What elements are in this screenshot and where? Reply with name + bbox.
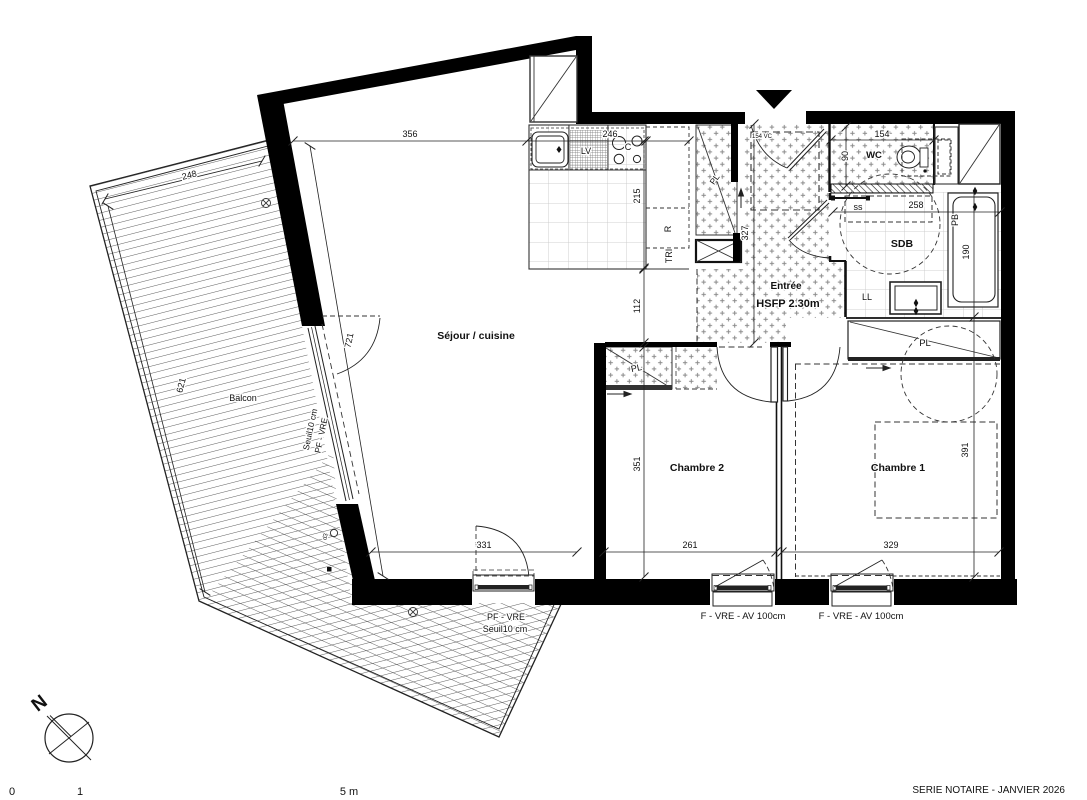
svg-text:154 VC: 154 VC	[752, 134, 773, 140]
svg-text:TRI: TRI	[664, 249, 674, 264]
svg-text:F - VRE - AV 100cm: F - VRE - AV 100cm	[819, 611, 904, 622]
svg-text:258: 258	[908, 200, 923, 210]
svg-text:261: 261	[682, 540, 697, 550]
svg-text:HSFP 2.30m: HSFP 2.30m	[756, 298, 820, 310]
svg-text:ss: ss	[854, 202, 864, 212]
svg-text:351: 351	[632, 456, 642, 471]
svg-text:356: 356	[402, 129, 417, 139]
svg-text:R: R	[663, 225, 673, 232]
svg-text:331: 331	[476, 540, 491, 550]
svg-text:329: 329	[883, 540, 898, 550]
svg-text:Seuil10 cm: Seuil10 cm	[483, 624, 528, 634]
svg-text:LV: LV	[581, 146, 591, 156]
svg-text:0: 0	[9, 786, 15, 798]
svg-text:PB: PB	[950, 214, 960, 226]
svg-text:LL: LL	[862, 292, 872, 302]
svg-text:PF - VRE: PF - VRE	[487, 612, 525, 622]
svg-text:391: 391	[960, 442, 970, 457]
svg-text:Séjour / cuisine: Séjour / cuisine	[437, 330, 515, 342]
svg-text:5 m: 5 m	[340, 786, 358, 798]
svg-text:190: 190	[961, 244, 971, 259]
svg-text:SDB: SDB	[891, 238, 914, 250]
svg-text:215: 215	[632, 188, 642, 203]
svg-text:112: 112	[632, 299, 642, 313]
svg-text:Balcon: Balcon	[229, 393, 257, 403]
svg-text:PL: PL	[919, 338, 931, 349]
svg-text:90: 90	[840, 151, 850, 161]
svg-text:SERIE NOTAIRE - JANVIER 2026: SERIE NOTAIRE - JANVIER 2026	[912, 785, 1065, 796]
svg-text:Entrée: Entrée	[770, 281, 802, 292]
svg-text:F - VRE - AV 100cm: F - VRE - AV 100cm	[701, 611, 786, 622]
svg-text:246: 246	[602, 129, 617, 139]
svg-text:154: 154	[874, 129, 889, 139]
svg-text:WC: WC	[866, 150, 882, 161]
svg-text:Chambre 1: Chambre 1	[871, 462, 925, 474]
svg-text:327: 327	[740, 225, 750, 240]
svg-text:Chambre 2: Chambre 2	[670, 462, 724, 474]
svg-text:C: C	[625, 142, 632, 152]
svg-text:1: 1	[77, 786, 83, 798]
